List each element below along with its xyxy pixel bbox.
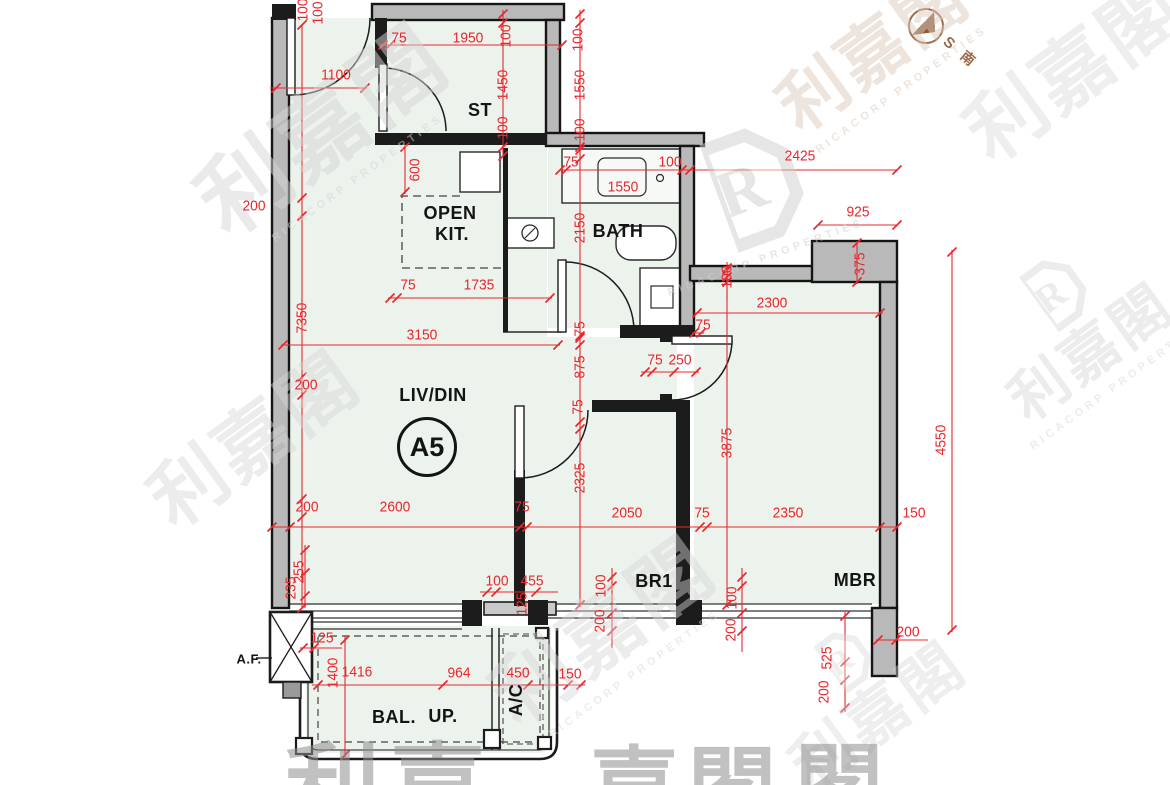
dim-label: 964 [447, 666, 470, 681]
dim-label: 100 [720, 265, 735, 288]
room-label-open: OPEN [423, 204, 476, 222]
dim-label: 75 [563, 155, 578, 170]
dim-label: 125 [310, 631, 333, 646]
dim-label: 100 [571, 28, 586, 51]
dim-label: 1950 [453, 31, 484, 46]
room-label-ac: A/C [507, 684, 525, 717]
room-label-st: ST [468, 101, 492, 119]
dim-label: 7350 [295, 303, 310, 334]
dim-label: 100 [496, 116, 511, 139]
dim-label: 100 [725, 586, 740, 609]
dim-label: 2325 [573, 463, 588, 494]
dim-label: 235 [284, 576, 299, 599]
room-label-af: A.F. [236, 653, 261, 666]
dim-label: 450 [506, 666, 529, 681]
dim-label: 2350 [773, 506, 804, 521]
dim-label: 75 [391, 31, 406, 46]
dim-label: 100 [311, 1, 326, 24]
dim-label: 75 [514, 500, 529, 515]
dim-label: 100 [573, 118, 588, 141]
dim-label: 525 [820, 646, 835, 669]
dim-label: 150 [902, 506, 925, 521]
dim-label: 200 [593, 609, 608, 632]
room-label-bath: BATH [593, 222, 644, 240]
dim-label: 125 [515, 592, 530, 615]
dim-label: 75 [571, 399, 586, 414]
dim-label: 200 [295, 500, 318, 515]
dim-label: 1416 [342, 665, 373, 680]
dim-label: 1735 [464, 278, 495, 293]
dim-label: 1450 [496, 70, 511, 101]
dim-label: 100 [296, 0, 311, 22]
dim-label: 100 [485, 574, 508, 589]
dim-label: 200 [294, 378, 317, 393]
dim-label: 3875 [720, 428, 735, 459]
dim-label: 75 [647, 353, 662, 368]
dim-label: 200 [242, 199, 265, 214]
dim-label: 600 [408, 158, 423, 181]
dim-label: 3150 [407, 328, 438, 343]
dim-label: 200 [896, 625, 919, 640]
dim-label: 75 [694, 506, 709, 521]
dim-label: 2425 [785, 149, 816, 164]
dim-label: 1550 [573, 70, 588, 101]
room-label-mbr: MBR [834, 571, 877, 589]
dim-label: 1100 [321, 68, 351, 83]
dim-label: 2150 [573, 213, 588, 244]
room-label-up: UP. [428, 707, 457, 725]
room-label-bal: BAL. [372, 708, 416, 726]
dim-label: 375 [853, 252, 868, 275]
dim-label: 200 [817, 680, 832, 703]
dim-label: 250 [668, 353, 691, 368]
dim-label: 75 [573, 321, 588, 336]
dim-label: 75 [695, 318, 710, 333]
dim-label: 150 [558, 667, 581, 682]
dim-label: 2300 [757, 296, 788, 311]
dim-label: 100 [499, 24, 514, 47]
floorplan-canvas: 1001007519501001001100145015501001002006… [0, 0, 1170, 785]
dim-label: 1550 [608, 180, 639, 195]
dim-label: 200 [724, 618, 739, 641]
dim-label: 925 [846, 205, 869, 220]
room-label-br1: BR1 [635, 572, 673, 590]
dim-label: 100 [658, 155, 681, 170]
dim-label: 875 [573, 355, 588, 378]
dim-label: 1400 [326, 658, 341, 689]
room-label-livdin: LIV/DIN [399, 386, 467, 404]
dim-label: 4550 [934, 425, 949, 456]
dim-label: 100 [594, 574, 609, 597]
dim-label: 2600 [380, 500, 411, 515]
unit-number-badge: A5 [397, 417, 457, 477]
dim-label: 75 [400, 278, 415, 293]
dim-label: 2050 [612, 506, 643, 521]
dim-label: 455 [520, 574, 543, 589]
room-label-kit: KIT. [435, 225, 469, 243]
